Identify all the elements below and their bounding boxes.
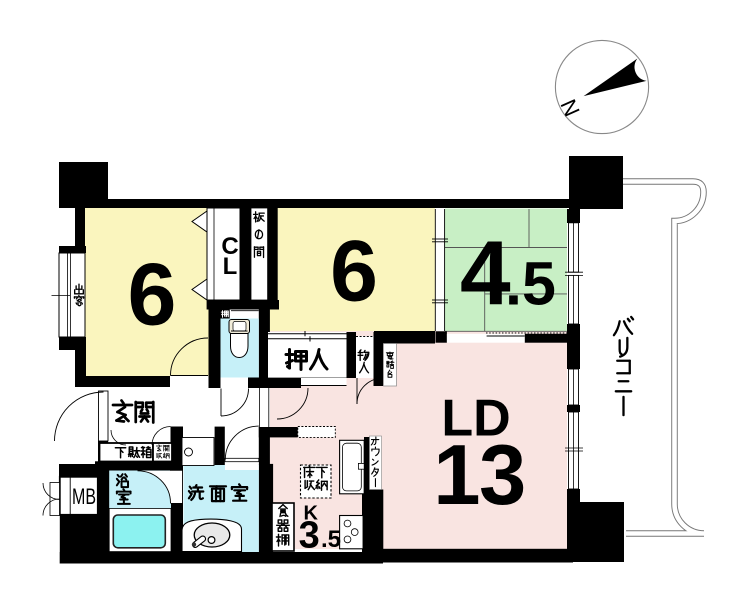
svg-text:MB: MB	[72, 484, 96, 509]
svg-text:L: L	[223, 253, 238, 280]
svg-text:3: 3	[299, 515, 320, 557]
svg-text:.5: .5	[505, 250, 556, 318]
svg-text:6: 6	[128, 245, 177, 344]
svg-text:.5: .5	[321, 526, 341, 553]
svg-text:4: 4	[460, 224, 511, 325]
svg-text:13: 13	[433, 428, 525, 523]
svg-text:6: 6	[330, 223, 378, 319]
